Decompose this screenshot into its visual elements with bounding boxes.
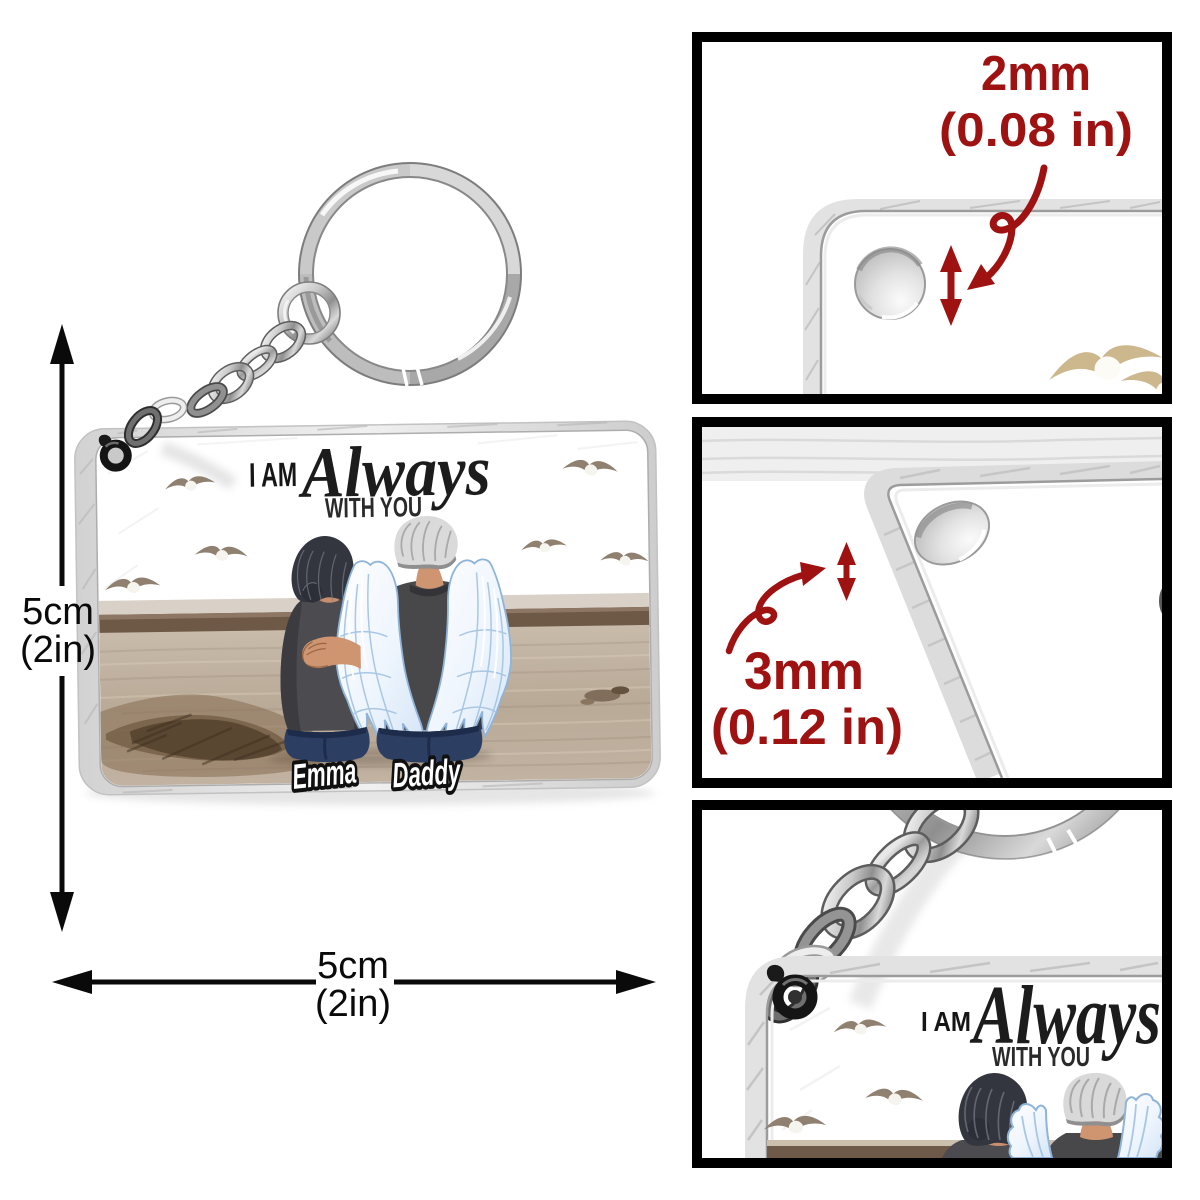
svg-text:(2in): (2in) (20, 629, 96, 671)
svg-text:Emma: Emma (290, 751, 358, 796)
svg-text:3mm: 3mm (744, 642, 864, 701)
svg-text:2mm: 2mm (981, 47, 1091, 101)
svg-text:(0.08 in): (0.08 in) (939, 103, 1133, 156)
svg-text:Daddy: Daddy (391, 752, 462, 796)
svg-text:5cm: 5cm (22, 591, 94, 633)
svg-text:(0.12 in): (0.12 in) (711, 699, 903, 755)
svg-text:(2in): (2in) (315, 983, 391, 1025)
svg-text:WITH YOU: WITH YOU (325, 491, 422, 523)
svg-text:5cm: 5cm (317, 945, 389, 987)
svg-text:I AM: I AM (921, 1006, 971, 1037)
svg-text:WITH YOU: WITH YOU (992, 1041, 1090, 1072)
svg-text:I AM: I AM (249, 456, 298, 495)
